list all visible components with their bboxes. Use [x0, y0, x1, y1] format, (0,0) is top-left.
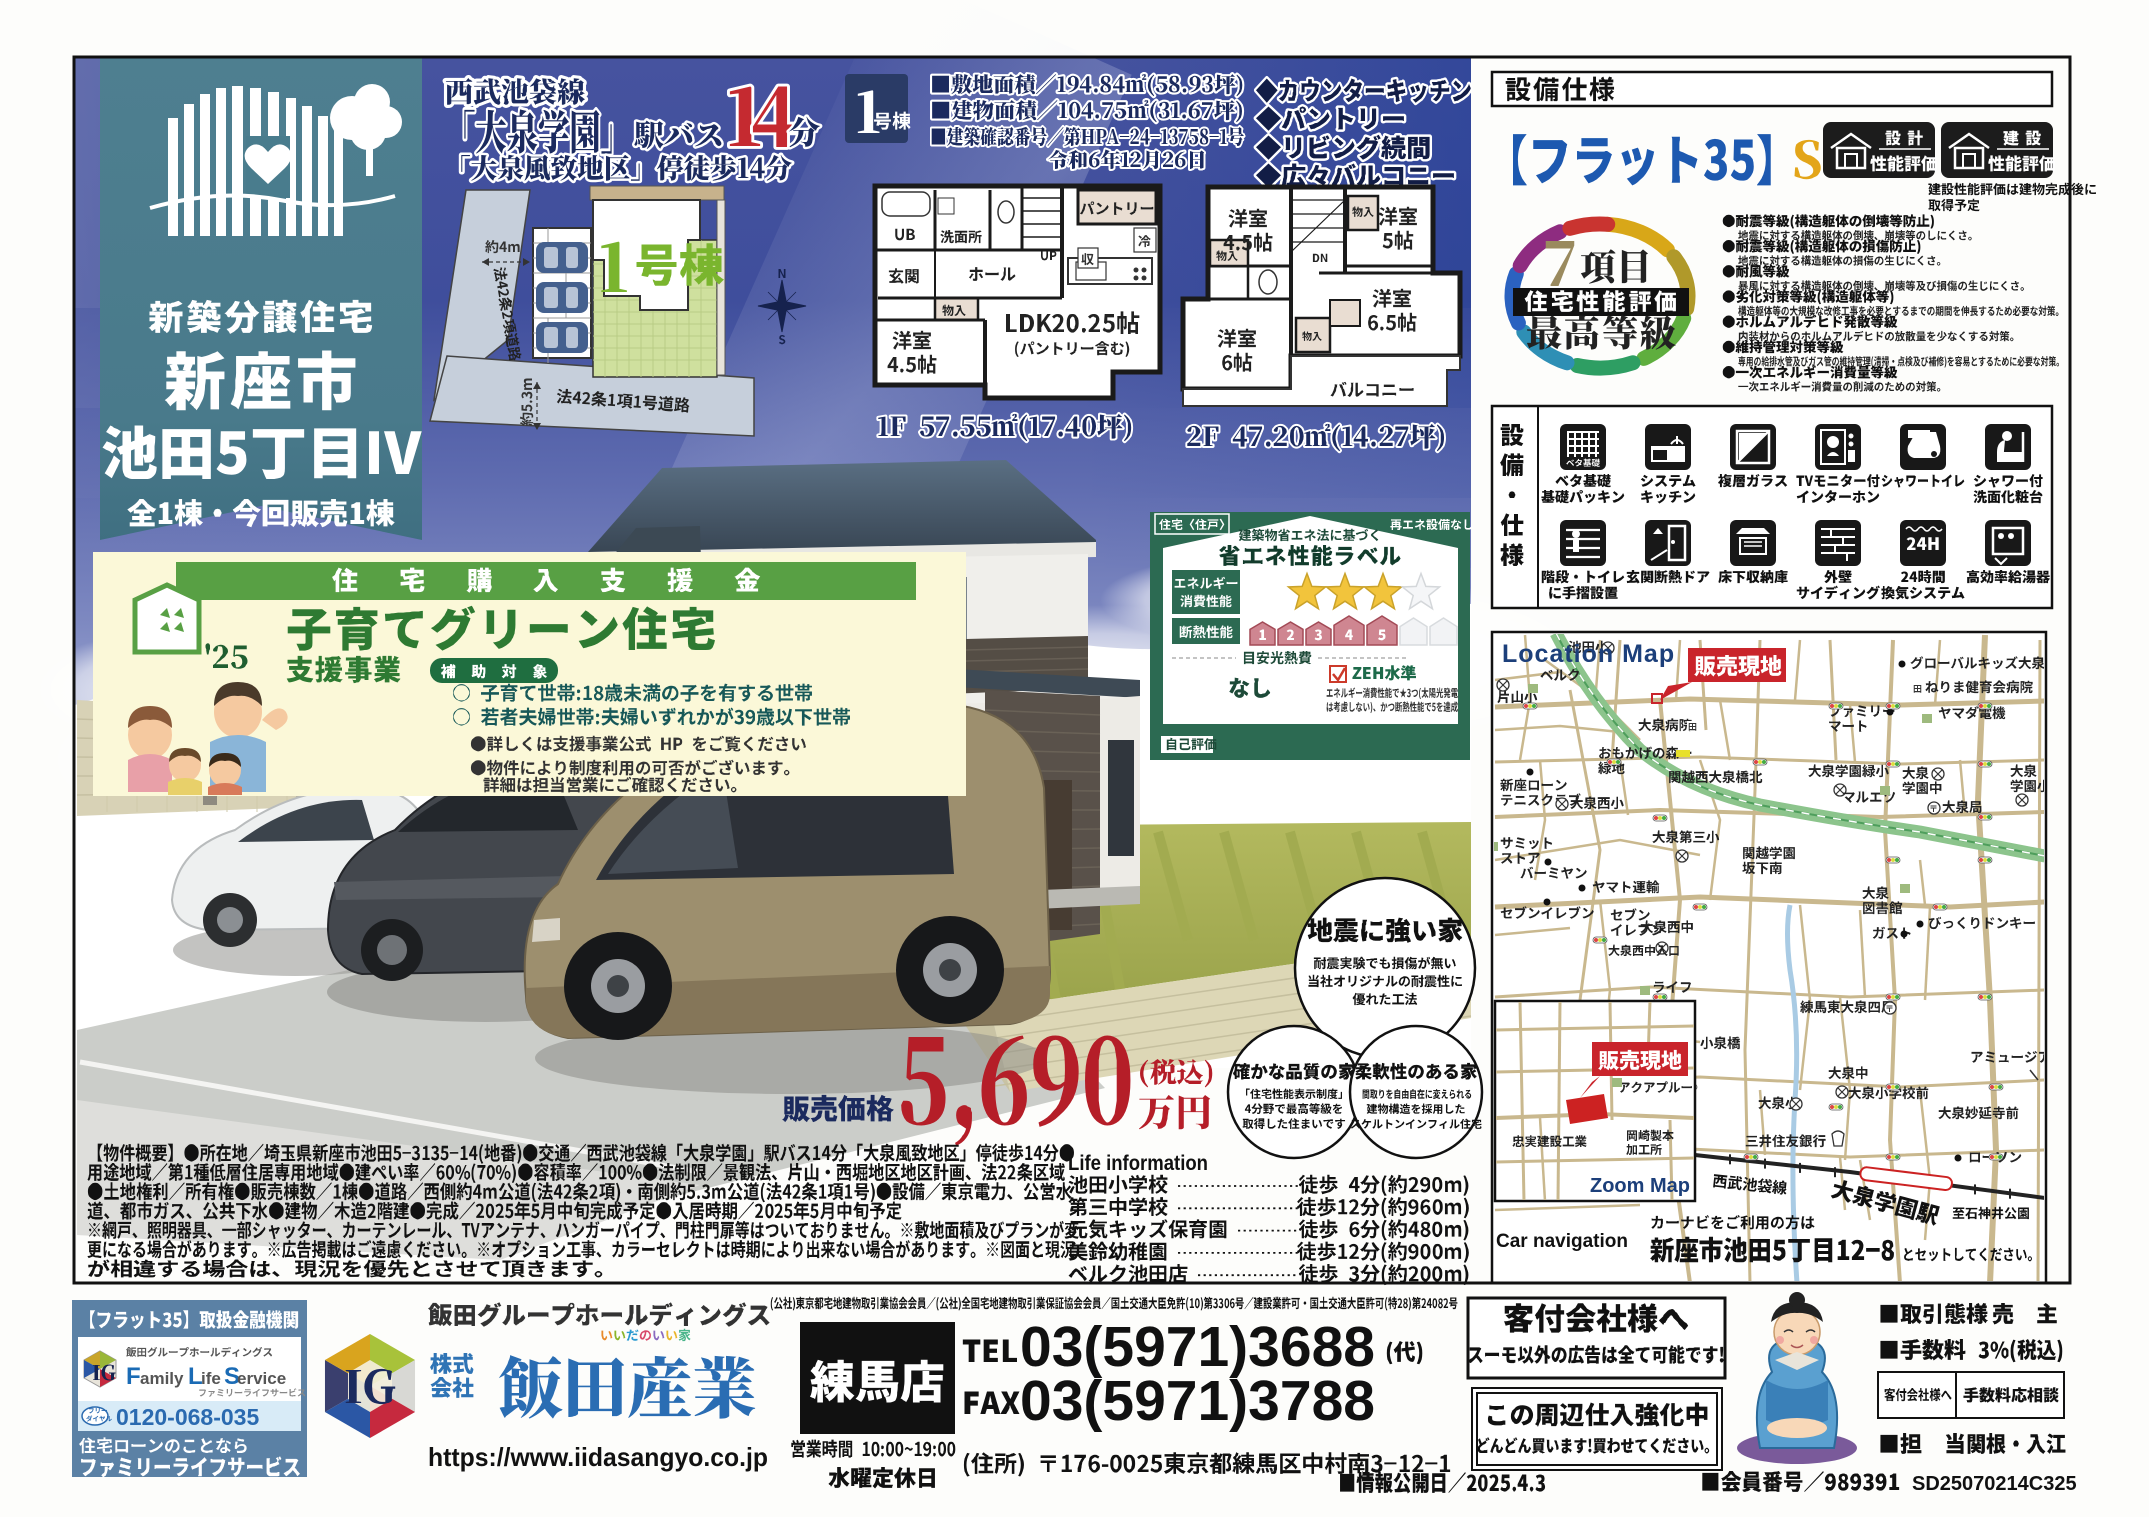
svg-text:Location Map: Location Map — [1502, 640, 1675, 668]
svg-text:https://www.iidasangyo.co.jp: https://www.iidasangyo.co.jp — [428, 1442, 768, 1472]
svg-text:Life information: Life information — [1068, 1152, 1208, 1175]
svg-text:F: F — [126, 1363, 141, 1390]
svg-text:ervice: ervice — [237, 1369, 286, 1388]
svg-text:SD25070214C325: SD25070214C325 — [1912, 1473, 2077, 1495]
svg-text:03(5971)3788: 03(5971)3788 — [1020, 1369, 1375, 1433]
svg-text:ife: ife — [201, 1369, 221, 1388]
svg-text:Car navigation: Car navigation — [1496, 1231, 1628, 1252]
svg-text:Zoom Map: Zoom Map — [1590, 1175, 1690, 1197]
svg-text:0120-068-035: 0120-068-035 — [116, 1404, 259, 1430]
svg-text:amily: amily — [140, 1369, 184, 1388]
